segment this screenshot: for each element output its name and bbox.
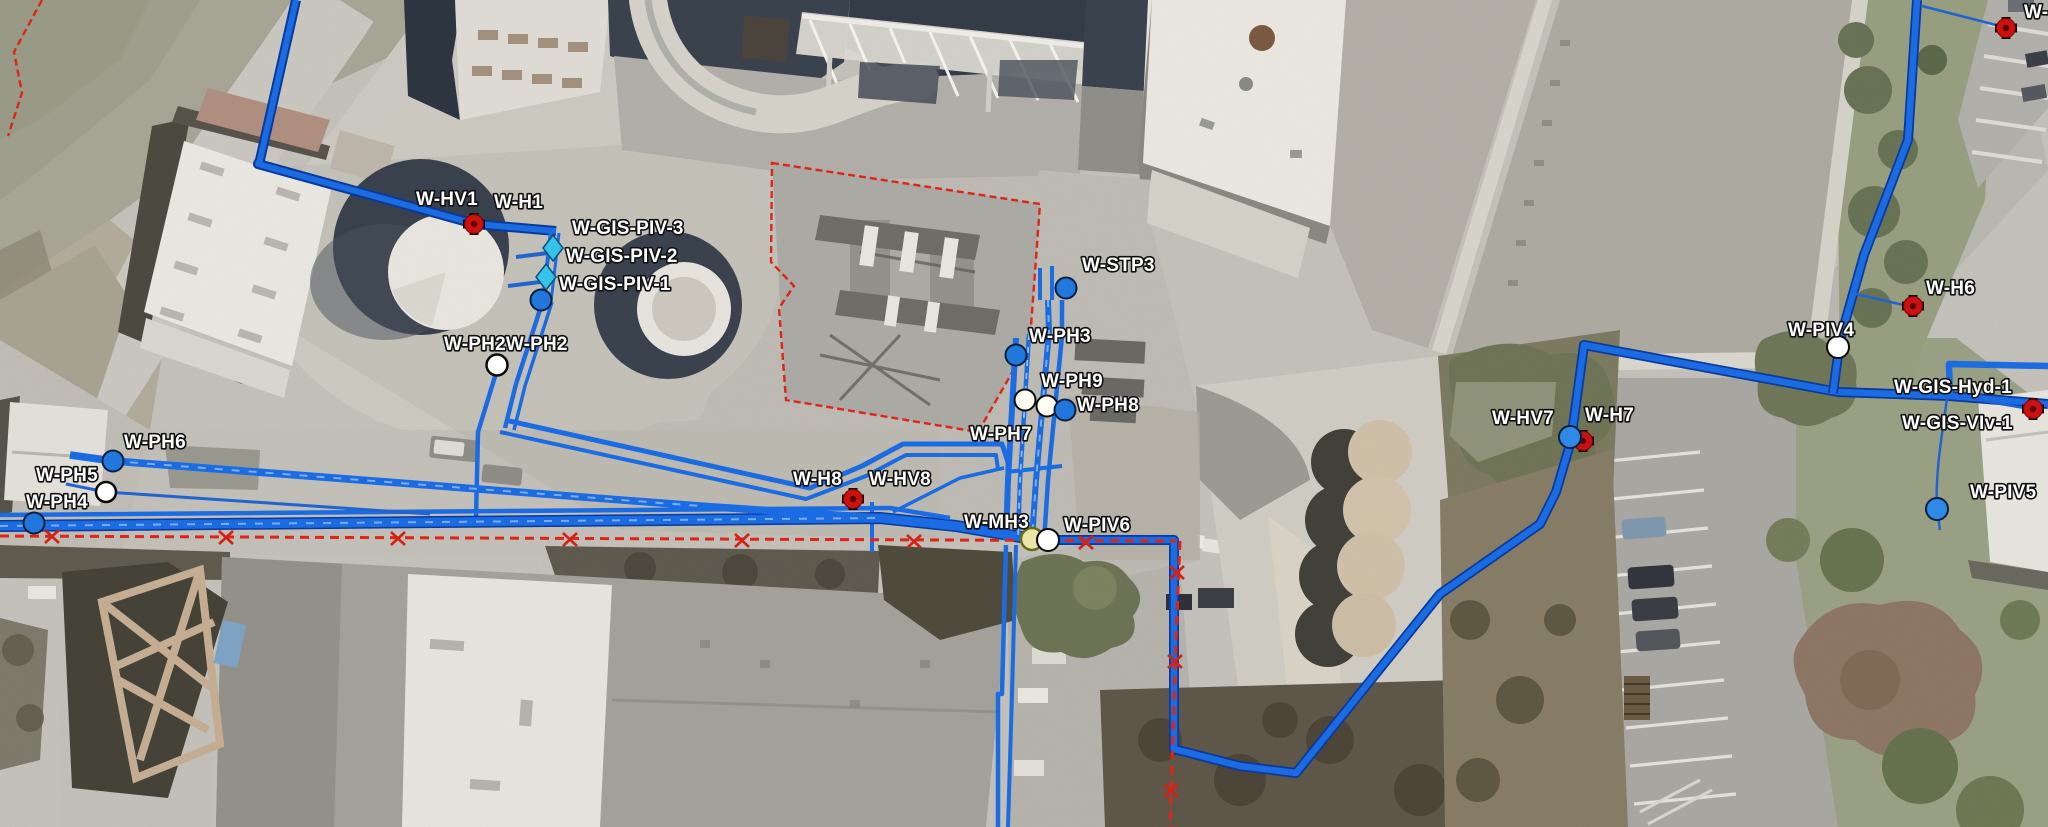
svg-text:W-H1: W-H1	[494, 192, 543, 213]
svg-text:W-PH4: W-PH4	[26, 492, 88, 513]
svg-text:W-GIS-Hyd-1: W-GIS-Hyd-1	[1894, 377, 2012, 398]
svg-text:W-PH3: W-PH3	[1029, 326, 1091, 347]
svg-text:W-GIS-VIv-1: W-GIS-VIv-1	[1902, 413, 2013, 434]
svg-text:W-STP3: W-STP3	[1082, 255, 1155, 276]
svg-text:W-PIV5: W-PIV5	[1970, 482, 2037, 503]
svg-text:W-PIV4: W-PIV4	[1788, 320, 1855, 341]
svg-text:W-PH9: W-PH9	[1041, 371, 1103, 392]
svg-text:W-GIS-PIV-1: W-GIS-PIV-1	[559, 274, 671, 295]
svg-text:W-GIS-PIV-3: W-GIS-PIV-3	[572, 218, 684, 239]
svg-text:W-H6: W-H6	[1926, 278, 1975, 299]
svg-text:W-H7: W-H7	[1585, 405, 1634, 426]
svg-text:W-HV8: W-HV8	[869, 469, 931, 490]
svg-text:W-GIS-PIV-2: W-GIS-PIV-2	[566, 246, 678, 267]
svg-text:W-PH5: W-PH5	[36, 465, 98, 486]
svg-text:W-: W-	[2024, 2, 2048, 23]
svg-text:W-MH3: W-MH3	[964, 512, 1029, 533]
svg-text:W-PIV6: W-PIV6	[1064, 515, 1130, 536]
svg-text:W-HV7: W-HV7	[1492, 408, 1554, 429]
svg-text:W-H8: W-H8	[793, 469, 842, 490]
svg-text:W-PH2W-PH2: W-PH2W-PH2	[444, 334, 568, 355]
svg-text:W-PH8: W-PH8	[1077, 395, 1139, 416]
svg-text:W-HV1: W-HV1	[416, 189, 478, 210]
svg-text:W-PH6: W-PH6	[124, 432, 186, 453]
svg-text:W-PH7: W-PH7	[970, 424, 1032, 445]
